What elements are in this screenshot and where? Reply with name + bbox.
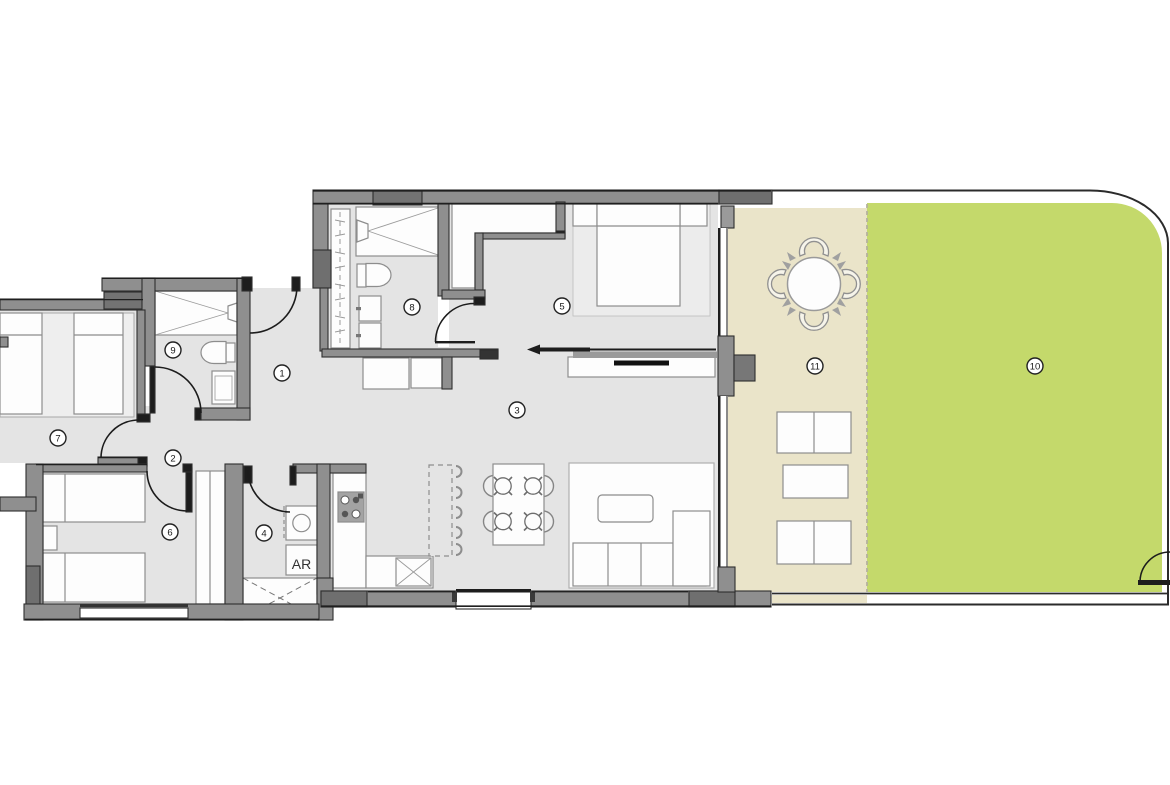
svg-text:10: 10 [1030,362,1041,373]
svg-text:3: 3 [514,406,519,417]
svg-text:9: 9 [170,346,175,357]
svg-text:4: 4 [261,529,266,540]
svg-text:11: 11 [810,362,820,373]
svg-text:1: 1 [279,369,284,380]
svg-text:2: 2 [170,454,175,465]
svg-text:AR: AR [292,556,311,572]
svg-text:6: 6 [167,528,172,539]
svg-text:7: 7 [55,434,60,445]
svg-text:8: 8 [409,303,414,314]
svg-text:5: 5 [559,302,564,313]
